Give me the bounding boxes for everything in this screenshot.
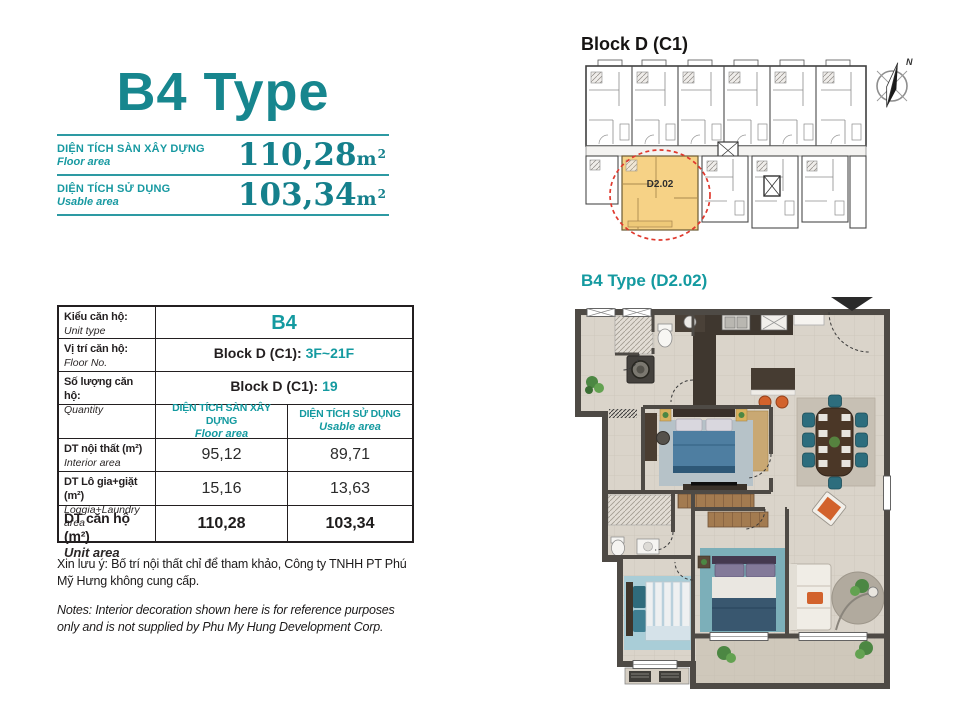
dining-chair [803,413,815,427]
floor-plan-title: B4 Type (D2.02) [581,271,707,291]
dining-chair [856,413,868,427]
table-row-interior: DT nội thất (m²) Interior area 95,12 89,… [59,439,412,472]
bed-runner [673,466,735,473]
bedroom3 [624,576,692,650]
wc-floor [615,316,653,354]
loggia-usable-value: 13,63 [288,472,412,506]
bed-sheet [712,577,776,598]
master-bedroom [698,548,786,632]
col-header-usable-en: Usable area [319,421,381,435]
unit-type-label-vi: Kiểu căn hộ: [64,311,150,325]
table-row-unit-area: DT căn hộ (m²) Unit area 110,28 103,34 [59,506,412,541]
usable-area-value: 103,34m2 [238,177,389,213]
dining-chair [856,433,868,447]
page-title: B4 Type [57,56,389,128]
block-key-plan: D2.02 [578,58,878,244]
pillow [633,610,646,632]
bar-stool [776,396,788,408]
desk [645,413,657,461]
floor-no-label-en: Floor No. [64,357,150,371]
floor-area-label-vi: DIỆN TÍCH SÀN XÂY DỰNG [57,143,205,156]
floor-area-label-en: Floor area [57,156,205,169]
bed-headboard [673,409,735,417]
highlighted-unit-d202: D2.02 [610,150,710,240]
block-plan-title: Block D (C1) [581,34,688,55]
unit-spec-table: Kiểu căn hộ: Unit type B4 Vị trí căn hộ:… [57,305,414,543]
tv [691,482,737,486]
floor-area-value: 110,28m2 [238,137,389,173]
interior-usable-value: 89,71 [288,439,412,472]
pillow [746,564,775,577]
pillow [706,419,732,431]
unit-area-usable-value: 103,34 [288,506,412,541]
ac-ledge [625,668,689,684]
bathroom-shower-floor [608,495,672,525]
interior-label-vi: DT nội thất (m²) [64,443,150,457]
brochure-page: B4 Type DIỆN TÍCH SÀN XÂY DỰNG Floor are… [0,0,960,722]
hall-wardrobe [678,494,754,508]
col-header-floor-vi: DIỆN TÍCH SÀN XÂY DỰNG [161,402,282,428]
floor-no-value: Block D (C1): 3F~21F [214,345,354,361]
dining-area [797,395,875,489]
quantity-label-vi: Số lượng căn hộ: [64,376,150,404]
table-row-col-headers: DIỆN TÍCH SÀN XÂY DỰNG Floor area DIỆN T… [59,405,412,439]
compass-n-label: N [906,57,913,67]
table-centerpiece [829,437,840,448]
table-row-floor-no: Vị trí căn hộ: Floor No. Block D (C1): 3… [59,339,412,372]
unit-number-label: D2.02 [647,179,674,190]
ac-unit [659,671,681,682]
bed-duvet [712,598,776,631]
bed-headboard [712,556,776,564]
washing-machine [627,356,654,383]
ac-unit [629,671,651,682]
upper-wing [586,60,866,146]
sofa-pillow [807,592,823,604]
floor-area-row: DIỆN TÍCH SÀN XÂY DỰNG Floor area 110,28… [57,136,389,176]
bed-blanket [646,626,690,640]
interior-label-en: Interior area [64,457,150,471]
area-summary: DIỆN TÍCH SÀN XÂY DỰNG Floor area 110,28… [57,134,389,216]
drain-hatch [609,409,637,418]
apartment-floor-plan [575,296,905,696]
usable-area-label-vi: DIỆN TÍCH SỬ DỤNG [57,183,170,196]
dining-chair [803,453,815,467]
note-vietnamese: Xin lưu ý: Bố trí nội thất chỉ để tham k… [57,556,409,589]
wc-toilet [658,324,672,347]
loggia-label-vi: DT Lô gia+giặt (m²) [64,476,150,504]
unit-area-floor-value: 110,28 [156,506,288,541]
dining-chair [856,453,868,467]
table-row-quantity: Số lượng căn hộ: Quantity Block D (C1): … [59,372,412,405]
pillow [715,564,744,577]
entrance-marker [831,297,873,311]
north-compass-icon: N [866,52,922,114]
usable-area-label-en: Usable area [57,196,170,209]
disclaimer-notes: Xin lưu ý: Bố trí nội thất chỉ để tham k… [57,556,409,635]
pillow [676,419,702,431]
pillow [633,586,646,608]
table-row-unit-type: Kiểu căn hộ: Unit type B4 [59,307,412,339]
dining-chair [829,395,842,407]
col-header-usable-vi: DIỆN TÍCH SỬ DỤNG [299,408,401,421]
note-english: Notes: Interior decoration shown here is… [57,602,409,635]
loggia-floor-value: 15,16 [156,472,288,506]
desk-chair [657,432,670,445]
dining-chair [803,433,815,447]
toilet [612,540,625,556]
bed-headboard [626,582,633,636]
unit-type-value: B4 [271,313,297,333]
bedroom2 [645,409,753,492]
usable-area-row: DIỆN TÍCH SỬ DỤNG Usable area 103,34m2 [57,176,389,216]
interior-floor-value: 95,12 [156,439,288,472]
unit-type-label-en: Unit type [64,325,150,339]
quantity-value: Block D (C1): 19 [230,378,337,394]
table-row-loggia: DT Lô gia+giặt (m²) Loggia+Laundry area … [59,472,412,506]
floor-no-label-vi: Vị trí căn hộ: [64,343,150,357]
master-wardrobe [708,512,768,527]
unit-area-label-vi: DT căn hộ (m²) [64,510,150,545]
dining-chair [829,477,842,489]
